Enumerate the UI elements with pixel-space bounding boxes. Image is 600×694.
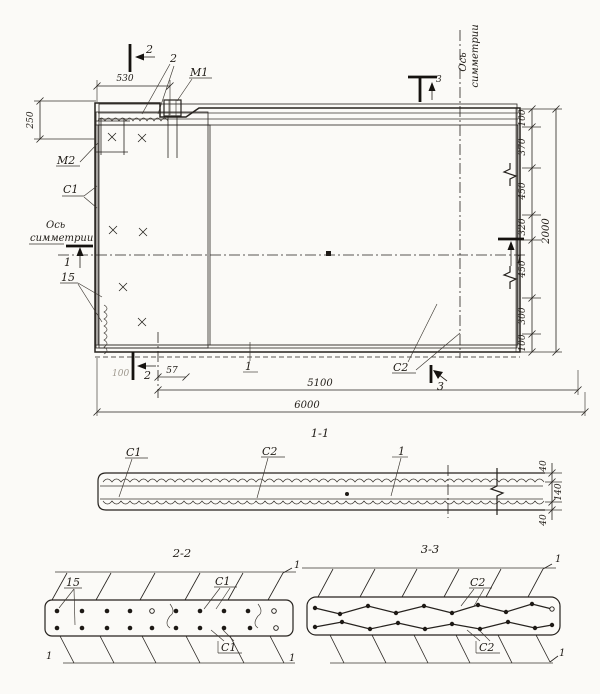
hook-row-top [98, 118, 168, 121]
top-rebar-dots-33 [313, 602, 554, 616]
label-c2-bottom: C2 [467, 630, 500, 654]
slab-section-outline [98, 473, 545, 510]
label-c1-section: C1 [119, 446, 148, 497]
break-mark-lower [504, 266, 516, 289]
cut-marker-3-top: 3 [408, 75, 442, 102]
bottom-mesh-hooks [103, 501, 544, 504]
mesh-c2-vertical-bars [99, 104, 517, 348]
axis-label-top-1: Ось [458, 52, 469, 71]
svg-text:C2: C2 [470, 576, 485, 589]
upper-projecting-bars-33 [318, 564, 552, 597]
top-mesh-c2-wire [315, 604, 552, 614]
section-1-1-title: 1-1 [311, 426, 330, 440]
svg-text:1: 1 [64, 256, 71, 269]
svg-text:C2: C2 [479, 641, 494, 654]
svg-text:1: 1 [245, 360, 252, 373]
section-3-3-view: 3-3 [302, 542, 565, 663]
svg-text:450: 450 [518, 182, 528, 200]
bottom-rebar-dots-33 [313, 620, 554, 631]
cut-marker-2-top: 2 [130, 43, 155, 72]
dim-2000: 2000 [541, 106, 560, 356]
top-mesh-hooks [103, 479, 544, 482]
axis-label-left-1: Ось [46, 220, 65, 231]
label-m2: M2 [56, 143, 98, 167]
spacer-dot [345, 492, 349, 496]
corner-bar-label-33-tr: 1 [555, 554, 561, 565]
svg-text:140: 140 [554, 483, 564, 500]
svg-text:6000: 6000 [294, 400, 320, 411]
svg-text:57: 57 [166, 366, 178, 376]
lower-projecting-bars-33 [330, 635, 558, 663]
drawing-sheet: Ось симметрии Ось симметрии 2 2 1 [0, 0, 600, 694]
section-2-2-title: 2-2 [172, 546, 192, 560]
svg-text:2: 2 [145, 43, 153, 56]
corner-bar-label-tr: 1 [294, 560, 300, 571]
cut-marker-2-bottom: 2 [133, 352, 156, 382]
cut-marker-3-bottom: 3 [431, 365, 447, 393]
svg-text:3: 3 [436, 75, 442, 85]
svg-text:370: 370 [518, 138, 528, 155]
label-m1: M1 [177, 66, 212, 101]
section-2-2-view: 2-2 1 [45, 546, 300, 664]
upper-projecting-bars [52, 568, 292, 600]
label-c2-top: C2 [461, 576, 492, 606]
svg-text:M1: M1 [189, 66, 208, 79]
section-1-1-view: 1-1 C1 C2 1 [98, 426, 564, 527]
svg-text:C1: C1 [63, 183, 78, 196]
corner-bar-label-33-br: 1 [559, 648, 565, 659]
svg-text:450: 450 [518, 260, 528, 278]
svg-text:15: 15 [66, 576, 80, 589]
svg-text:15: 15 [61, 271, 75, 284]
dim-57: 57 [155, 366, 190, 381]
lower-projecting-bars [60, 636, 284, 663]
dim-chain-right: 100 370 450 320 450 300 100 [518, 106, 562, 356]
svg-text:40: 40 [539, 514, 549, 527]
weld-marks [108, 133, 147, 326]
section-break-mark [491, 468, 503, 515]
label-bar1-section: 1 [391, 445, 408, 496]
svg-text:530: 530 [116, 74, 133, 84]
bottom-mesh-c2-wire [315, 622, 552, 629]
plan-view: Ось симметрии Ось симметрии 2 2 1 [26, 24, 589, 416]
svg-text:300: 300 [518, 307, 528, 324]
dim-250: 250 [26, 98, 96, 143]
svg-text:C1: C1 [221, 641, 236, 654]
svg-text:250: 250 [26, 111, 36, 129]
dim-5100: 5100 [155, 370, 582, 395]
svg-text:3: 3 [437, 380, 444, 393]
section-3-3-title: 3-3 [421, 542, 440, 556]
mesh-c2-horizontal-bars [98, 125, 518, 345]
lap-splice-mark-2 [255, 604, 261, 628]
slab-outline [95, 103, 520, 352]
corner-bar-label-br: 1 [289, 653, 295, 664]
svg-text:2: 2 [143, 369, 151, 382]
bottom-rebar-dots [55, 626, 279, 631]
svg-text:C2: C2 [262, 445, 277, 458]
axis-label-top-2: симметрии [470, 24, 481, 87]
label-c2-plan: C2 [392, 304, 460, 374]
mesh-c1-horizontal-bars [95, 125, 210, 345]
reinforcement-drawing: Ось симметрии Ось симметрии 2 2 1 [0, 0, 600, 694]
svg-text:40: 40 [539, 460, 549, 473]
svg-text:100: 100 [518, 334, 528, 351]
svg-text:2000: 2000 [541, 218, 552, 245]
label-c2-section: C2 [257, 445, 285, 498]
axis-label-left-2: симметрии [30, 233, 93, 244]
cut-marker-1-left: 1 [64, 246, 93, 269]
svg-text:5100: 5100 [307, 378, 333, 389]
label-c1-plan: C1 [62, 183, 97, 208]
corner-bar-label-bl: 1 [46, 651, 52, 662]
hook-row-left [104, 305, 107, 354]
embed-m1-plate [164, 100, 181, 116]
svg-text:1: 1 [398, 445, 405, 458]
svg-text:C2: C2 [393, 361, 408, 374]
svg-text:2: 2 [169, 52, 177, 65]
dim-530: 530 [94, 74, 174, 115]
dim-40-140-40: 40 140 40 [539, 460, 564, 527]
svg-text:100: 100 [518, 109, 528, 126]
svg-text:C1: C1 [126, 446, 141, 459]
label-bar1-plan: 1 [243, 342, 258, 373]
top-rebar-dots [55, 609, 277, 614]
slab-body-3-3 [307, 597, 560, 635]
lap-splice-mark [167, 604, 173, 628]
break-mark-upper [504, 163, 516, 186]
svg-text:C1: C1 [215, 575, 230, 588]
svg-text:320: 320 [518, 218, 528, 235]
dim-100-faint: 100 [112, 369, 129, 379]
svg-text:M2: M2 [56, 154, 75, 167]
